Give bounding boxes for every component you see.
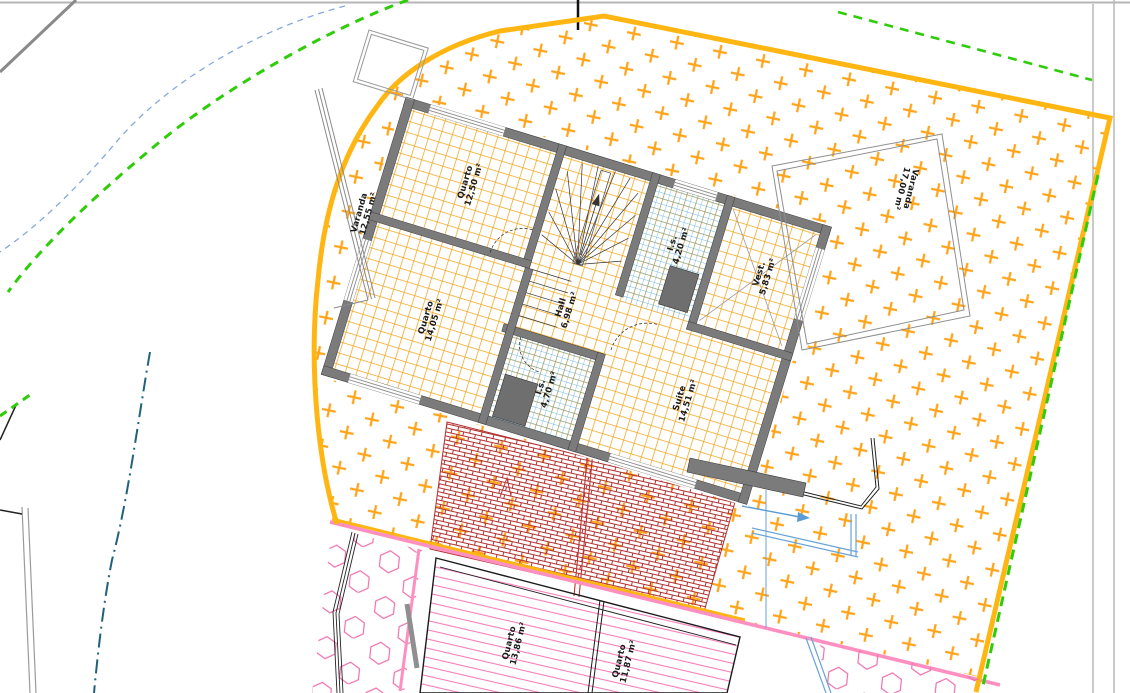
floor-plan-canvas: Quarto 13,86 m² Quarto 11,87 m² xyxy=(0,0,1130,693)
pipeline-teal-dashdot-curve xyxy=(94,352,150,693)
neighbor-boundary-marks xyxy=(0,403,22,514)
cad-viewport[interactable]: Quarto 13,86 m² Quarto 11,87 m² xyxy=(0,0,1130,693)
corner-diagonal-line xyxy=(0,0,76,72)
contour-blue-dashed-curve xyxy=(0,6,345,252)
sheet-edge-lines xyxy=(22,507,36,693)
limit-green-dash-bottom-left xyxy=(0,392,34,416)
